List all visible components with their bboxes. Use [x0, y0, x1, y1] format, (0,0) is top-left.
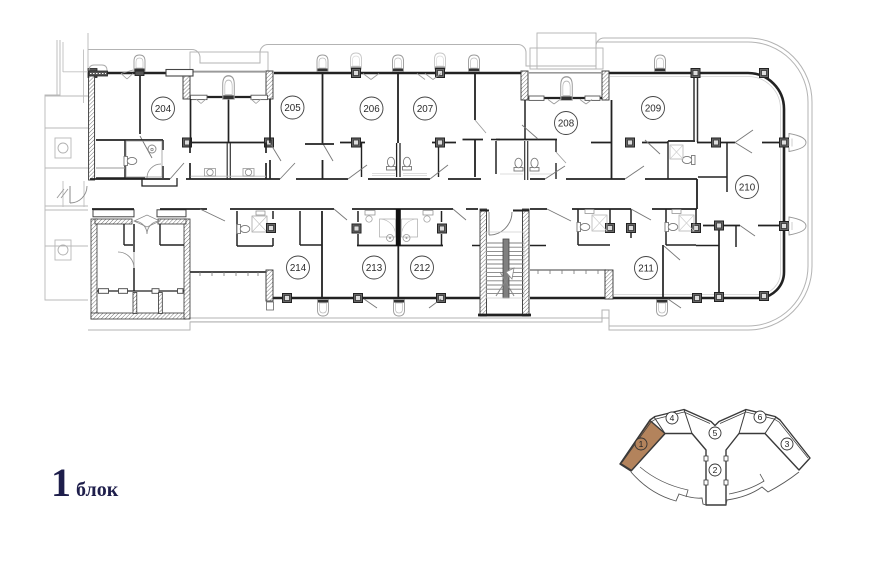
- svg-text:205: 205: [284, 103, 301, 114]
- svg-text:1: 1: [51, 460, 71, 505]
- svg-text:6: 6: [758, 412, 763, 422]
- svg-text:210: 210: [739, 182, 756, 193]
- svg-text:208: 208: [558, 118, 575, 129]
- svg-text:207: 207: [417, 104, 433, 115]
- svg-text:206: 206: [363, 104, 380, 115]
- svg-text:212: 212: [414, 263, 430, 274]
- svg-text:204: 204: [155, 104, 172, 115]
- svg-text:2: 2: [713, 465, 718, 475]
- svg-text:4: 4: [670, 413, 675, 423]
- svg-text:214: 214: [290, 263, 307, 274]
- svg-text:блок: блок: [76, 479, 119, 501]
- svg-text:211: 211: [638, 263, 654, 274]
- svg-text:1: 1: [639, 439, 644, 449]
- svg-text:213: 213: [366, 263, 383, 274]
- svg-text:5: 5: [713, 428, 718, 438]
- svg-text:209: 209: [645, 103, 661, 114]
- svg-text:3: 3: [785, 439, 790, 449]
